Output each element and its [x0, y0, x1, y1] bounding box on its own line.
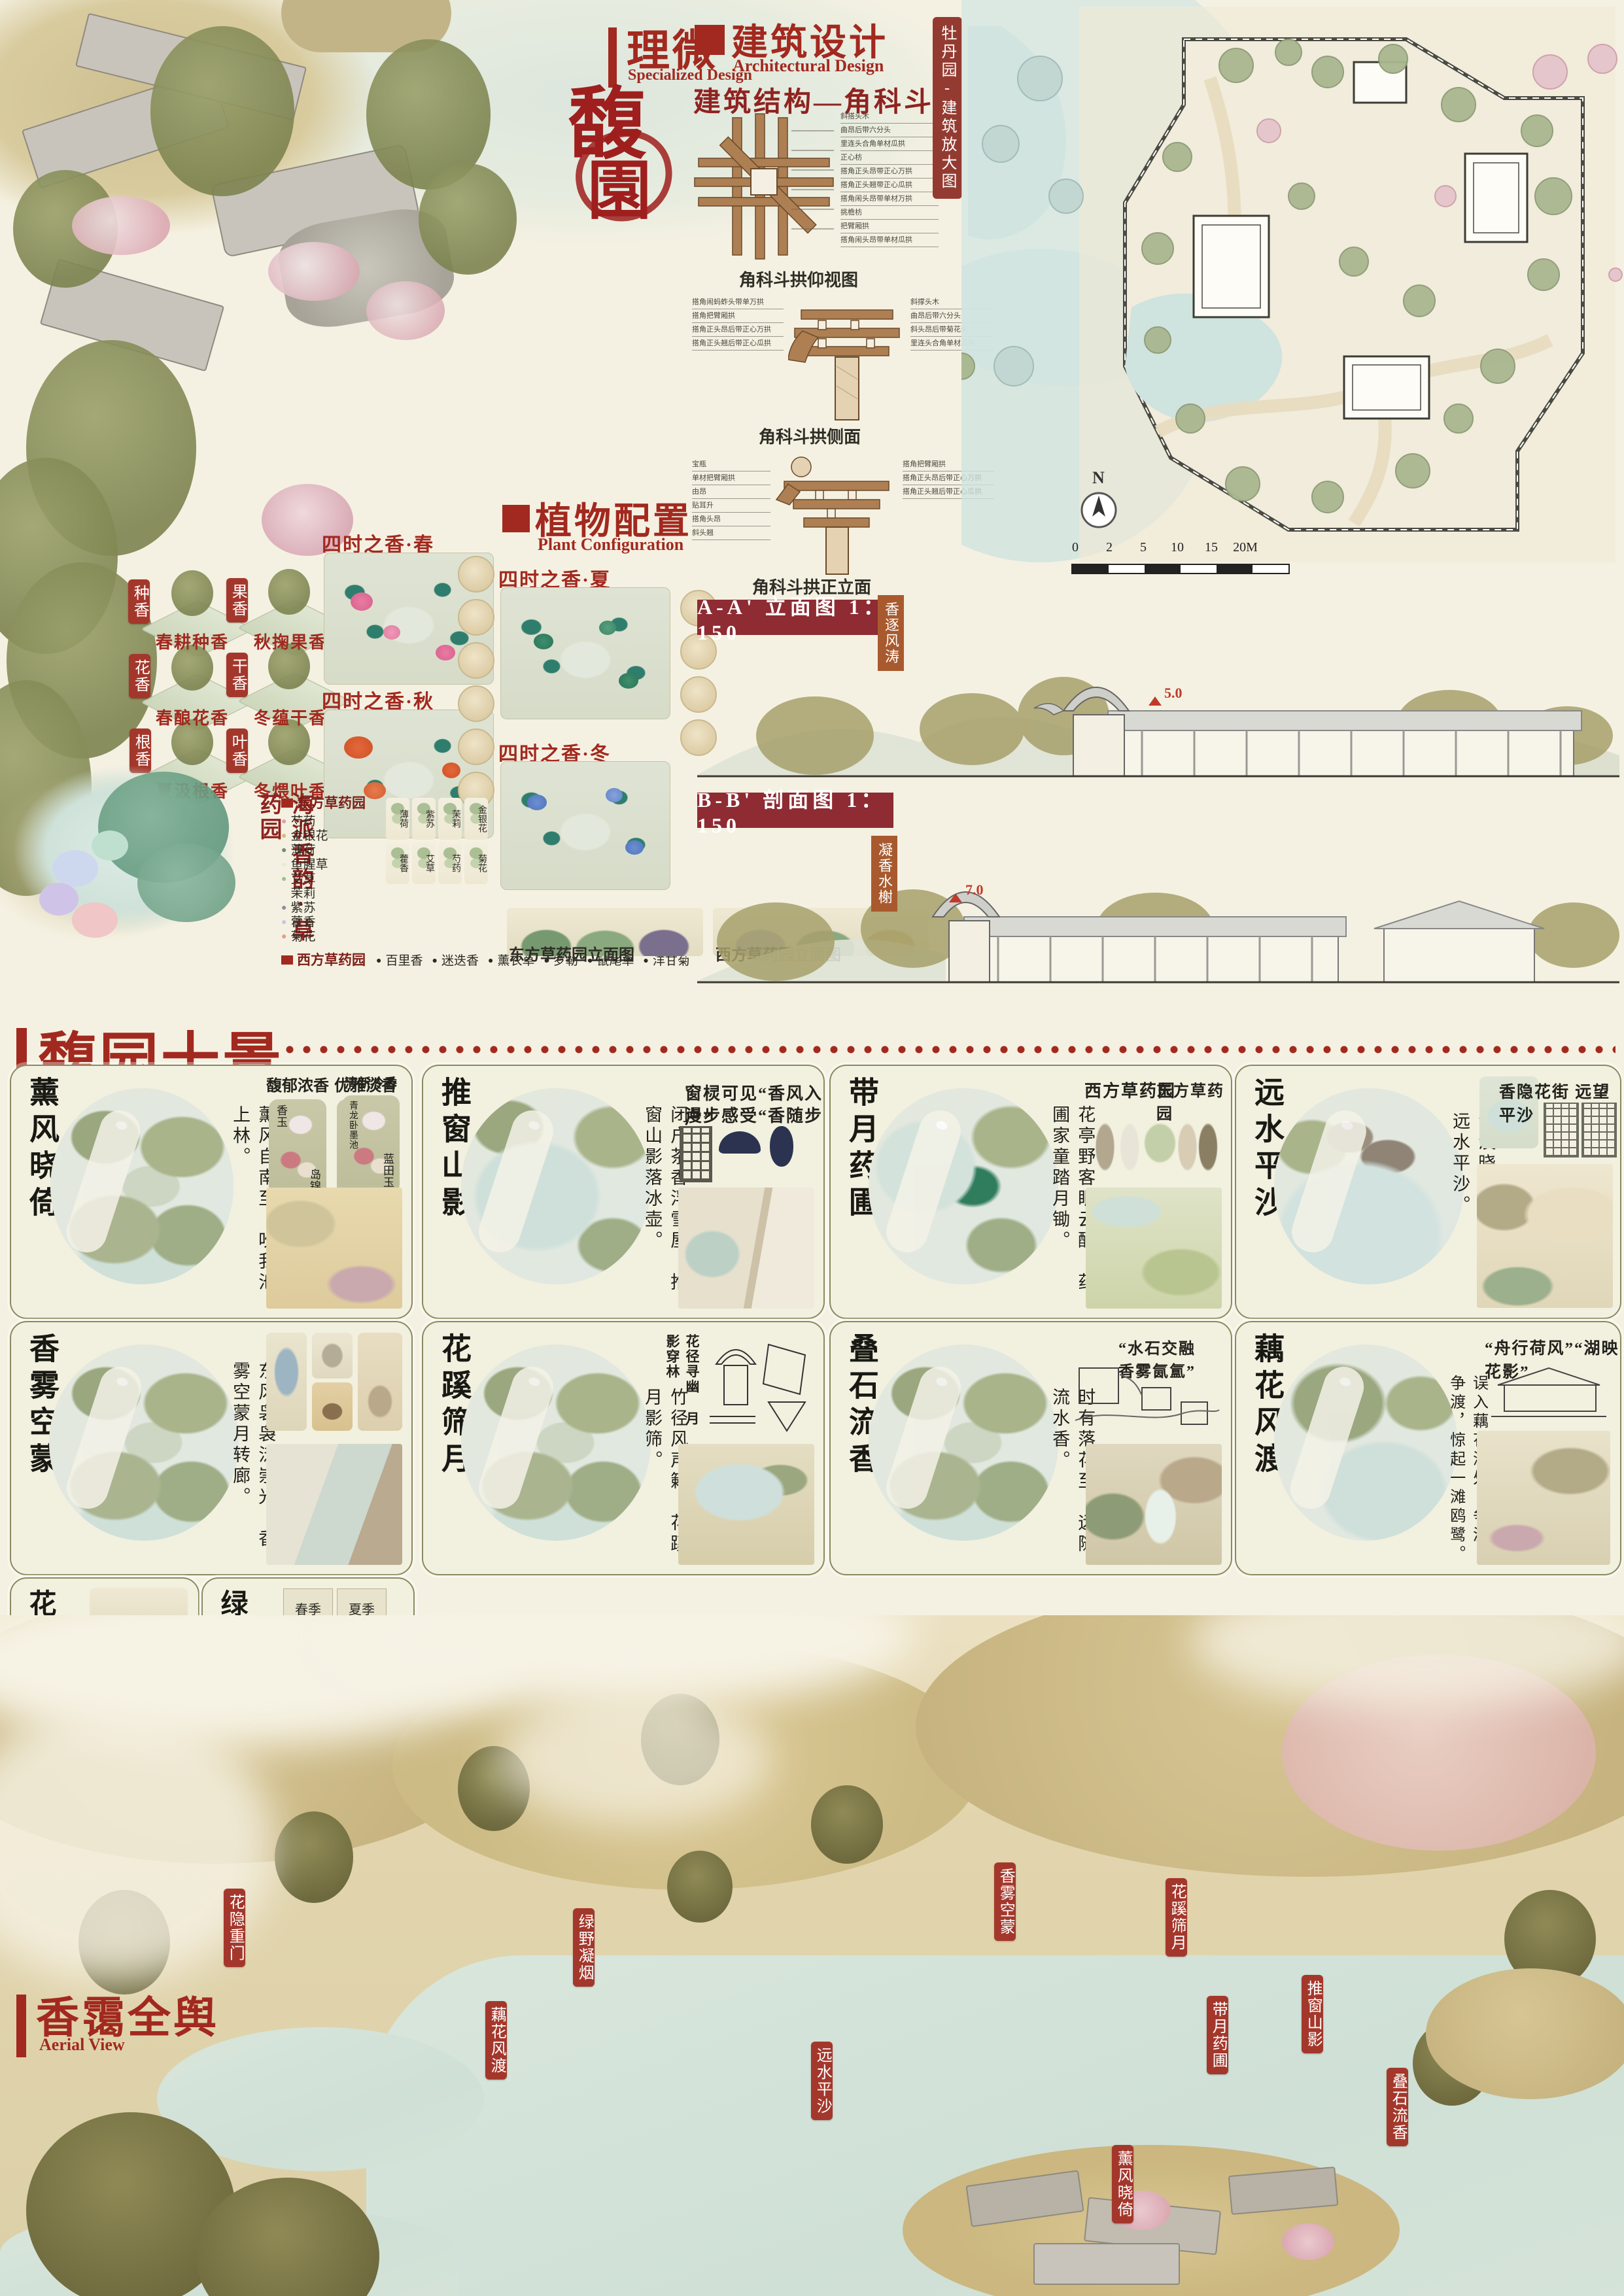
aerial-tag: 叠石流香 [1387, 2068, 1408, 2146]
scene-photo [678, 1444, 814, 1565]
scene-photo [266, 1444, 402, 1565]
bb-section-drawing: 7.0 [697, 831, 1619, 1020]
west-legend-title: 西方草药园 [281, 952, 366, 968]
dougong-bottom-labels: 斜搭头木曲昂后带六分头里连头合角单材瓜拱正心枋搭角正头昂带正心万拱搭角正头翘带正… [840, 110, 939, 247]
east-elev-caption: 东方草药园立面图 [509, 942, 634, 965]
dougong-callout-label: 搭角把臂厢拱 [692, 309, 784, 323]
aa-scene-tag: 香逐风涛 [878, 595, 904, 671]
aa-section-label: A-A' 立面图 1：150 [697, 600, 893, 635]
herb-legend-item: 紫苏 [281, 901, 379, 916]
fragrance-caption: 春耕种香 [156, 629, 229, 653]
master-plan-tag: 牡丹园-建筑放大图 [933, 17, 962, 199]
scene-card-daiyue: 带月药圃 花亭野客眠云醉，药圃家童踏月锄。 西方草药园 东方草药园 [829, 1065, 1232, 1319]
aerial-tag: 绿野凝烟 [573, 1908, 595, 1987]
dougong-callout-label: 斜搭头木 [840, 110, 939, 124]
scene-card-tuichuang: 推窗山影 闭户茶香浮雪屋，推窗山影落冰壶。 窗棂可见“香风入户” 漫步感受“香随… [422, 1065, 825, 1319]
flower-name: 蓝田玉 [379, 1153, 396, 1188]
dougong-callout-label: 挑檐枋 [840, 206, 939, 220]
dougong-caption-1: 角科斗拱仰视图 [739, 267, 858, 291]
scene-plan-circle [49, 1345, 239, 1541]
flower-name: 香玉 [273, 1105, 289, 1128]
rock-water-plan-sketch [1070, 1362, 1220, 1433]
dougong-callout-label: 搭角闹头昂带单材瓜拱 [840, 233, 939, 247]
herb-legend-item: 金银花 [281, 829, 379, 844]
aerial-tag: 远水平沙 [811, 2042, 833, 2120]
dougong-side-labels-left: 搭角闹蚂蚱头带单万拱搭角把臂厢拱搭角正头昂后带正心万拱搭角正头翘后带正心瓜拱 [692, 296, 784, 351]
dougong-caption-2: 角科斗拱侧面 [759, 424, 861, 448]
dougong-callout-label: 由昂 [692, 485, 770, 499]
scene-card-dieshi: 叠石流香 时有落花至，远随流水香。 “水石交融 香雾氤氲” [829, 1321, 1232, 1575]
censer-illustration [312, 1382, 353, 1431]
flower-grade-3: 清新冷香 青龙卧墨池 蓝田玉 [337, 1072, 405, 1193]
fragrance-caption: 秋掬果香 [254, 629, 327, 653]
bb-section-label: B-B' 剖面图 1：150 [697, 793, 893, 828]
scene-card-huaxi: 花蹊筛月 竹径风声籁，花蹊月影筛。 花径寻幽 月影穿林 [422, 1321, 825, 1575]
grade-label: 馥郁浓香 [265, 1072, 330, 1095]
scale-tick: 5 [1126, 540, 1160, 555]
dougong-callout-label: 宝瓶 [692, 458, 770, 471]
scene-photo [1477, 1431, 1610, 1565]
dougong-callout-label: 搭角正头昂后带正心万拱 [692, 323, 784, 337]
arch-red-square [695, 25, 725, 55]
dougong-front-labels-left: 宝瓶单材把臂厢拱由昂贴耳升搭角头昂斜头翘 [692, 458, 770, 540]
scale-tick: 0 [1058, 540, 1092, 555]
dougong-callout-label: 单材把臂厢拱 [692, 471, 770, 485]
dotted-divider [281, 1045, 1615, 1054]
herb-legend-item: 百里香 [376, 954, 423, 968]
dougong-front-view [775, 453, 899, 577]
herb-legend-item: 芍药 [281, 815, 379, 829]
east-legend-title: 东方草药园 [281, 793, 379, 812]
scale-tick: 20M [1228, 540, 1262, 555]
aerial-red-bar [16, 1995, 26, 2057]
season-plan-summer [500, 587, 670, 719]
dougong-callout-label: 搭角正头翘带正心瓜拱 [840, 179, 939, 192]
herb-thumb: 茉莉 [438, 798, 462, 840]
herb-thumb: 藿香 [386, 842, 409, 884]
fragrance-caption: 春酿花香 [156, 705, 229, 729]
dougong-bottom-view [693, 111, 837, 262]
scene-plan-circle [461, 1345, 651, 1541]
scene-photo [1086, 1188, 1222, 1309]
scene-plan-circle [869, 1088, 1058, 1284]
herb-thumb: 芍药 [438, 842, 462, 884]
pavilion-drawing [690, 1331, 814, 1436]
scene-card-xiangwu: 香雾空蒙 东风袅袅泛崇光，香雾空蒙月转廊。 [10, 1321, 413, 1575]
aerial-tag: 藕花风渡 [485, 2001, 507, 2080]
lattice-detail-icon [1544, 1103, 1579, 1157]
herb-legend-item: 艾草 [281, 872, 379, 887]
fragrance-tag: 花香 [129, 654, 150, 698]
flower-chip: 香玉 岛锦 [269, 1099, 326, 1197]
bb-scene-tag: 凝香水榭 [871, 836, 897, 912]
dougong-callout-label: 搭角闹蚂蚱头带单万拱 [692, 296, 784, 309]
dougong-callout-label: 搭角闹头昂带单材万拱 [840, 192, 939, 206]
herb-thumb: 薄荷 [386, 798, 409, 840]
herb-legend-item: 茉莉 [281, 887, 379, 901]
herb-thumb: 紫苏 [412, 798, 436, 840]
dougong-callout-label: 曲昂后带六分头 [840, 124, 939, 137]
master-plan: N 025101520M [961, 0, 1624, 589]
waterside-pavilion-sketch [1485, 1359, 1613, 1424]
aerial-tag: 花隐重门 [224, 1889, 245, 1967]
herb-thumb: 金银花 [464, 798, 488, 840]
dougong-callout-label: 斜头翘 [692, 526, 770, 540]
herb-legend-item: 鱼腥草 [281, 858, 379, 872]
bb-section-marker: 7.0 [965, 882, 984, 899]
plant-subtitle: Plant Configuration [538, 535, 683, 555]
scene-photo [266, 1188, 402, 1309]
aa-elevation-drawing: 5.0 [697, 638, 1619, 808]
scene-photo [1086, 1444, 1222, 1565]
dougong-side-view [788, 294, 906, 425]
scale-tick: 2 [1092, 540, 1126, 555]
aerial-subtitle: Aerial View [39, 2035, 125, 2055]
dougong-callout-label: 正心枋 [840, 151, 939, 165]
herb-legend-item: 迷迭香 [432, 954, 478, 968]
herb-garden-plan [13, 752, 262, 948]
scale-tick: 10 [1160, 540, 1194, 555]
east-herb-legend: 东方草药园 芍药金银花薄荷鱼腥草艾草茉莉紫苏藿香菊花 [281, 793, 379, 944]
aerial-tag: 带月药圃 [1207, 1996, 1228, 2074]
dougong-callout-label: 把臂厢拱 [840, 220, 939, 233]
scene-plan-circle [1274, 1088, 1464, 1284]
herb-thumbs: 薄荷紫苏茉莉金银花藿香艾草芍药菊花 [385, 797, 502, 885]
grade-label: 清新冷香 [337, 1072, 405, 1091]
herb-legend-item: 洋甘菊 [643, 954, 689, 968]
scene-photo [1477, 1164, 1613, 1308]
courtyard-painting [0, 0, 654, 562]
plant-red-square [502, 505, 530, 532]
dougong-callout-label: 里连头合角单材瓜拱 [840, 137, 939, 151]
north-arrow-icon: N [1092, 468, 1105, 488]
scene-plan-circle [1274, 1345, 1457, 1541]
herb-legend-item: 菊花 [281, 930, 379, 944]
flower-chip: 青龙卧墨池 蓝田玉 [342, 1095, 400, 1193]
rock-illustration [266, 1333, 307, 1431]
scale-bar [1071, 564, 1290, 574]
aerial-tag: 薰风晓倚 [1112, 2145, 1133, 2223]
main-title-char2: 園 [587, 139, 651, 231]
dougong-callout-label: 搭角头昂 [692, 513, 770, 526]
scale-ticks: 025101520M [1058, 540, 1320, 555]
courtyard-photo-small [358, 1333, 402, 1431]
herb-legend-item: 薄荷 [281, 844, 379, 858]
aerial-tag: 推窗山影 [1302, 1975, 1323, 2053]
dougong-callout-label: 搭角正头昂带正心万拱 [840, 165, 939, 179]
dougong-callout-label: 搭角正头翘后带正心瓜拱 [692, 337, 784, 351]
scene-card-ouhua: 藕花风渡 误入藕花深处。争渡，争渡，惊起一滩鸥鹭。 “舟行荷风”“湖映花影” [1235, 1321, 1621, 1575]
scene-card-yuanshui: 远水平沙 淡淡晓山横雾，茫茫远水平沙。 香隐花街 远望平沙 [1235, 1065, 1621, 1319]
lattice-window-icon [680, 1126, 712, 1182]
dougong-callout-label: 贴耳升 [692, 499, 770, 513]
aerial-tag: 花蹊筛月 [1166, 1878, 1187, 1957]
fragrance-tag: 种香 [128, 579, 150, 624]
season-plan-winter [500, 761, 670, 890]
scene-plan-circle [461, 1088, 651, 1284]
arch-subtitle: Architectural Design [733, 56, 884, 76]
lattice-detail-icon [1581, 1103, 1617, 1157]
oval-window-icon [770, 1126, 793, 1167]
scene-plan-circle [869, 1345, 1058, 1541]
poster-page: { "header": { "liwei": {"title": "理微", "… [0, 0, 1624, 2296]
herb-thumb: 菊花 [464, 842, 488, 884]
fragrance-caption: 冬蕴干香 [254, 705, 327, 729]
flower-name: 青龙卧墨池 [346, 1101, 359, 1150]
scene-photo [678, 1188, 814, 1309]
scene-card-xunfeng: 薰风晓倚 薰风自南至，吹我池上林。 馥郁浓香 香玉 岛锦 优雅淡香 姚黄 白玉 … [10, 1065, 413, 1319]
rock-illustration-2 [312, 1333, 353, 1379]
scale-tick: 15 [1194, 540, 1228, 555]
fragrance-tag: 果香 [226, 578, 248, 623]
figures-illustration [1084, 1100, 1222, 1178]
aerial-tag: 香雾空蒙 [994, 1862, 1016, 1941]
scene-plan-circle [50, 1088, 233, 1284]
herb-legend-item: 藿香 [281, 916, 379, 930]
fragrance-tag: 干香 [226, 653, 248, 697]
herb-thumb: 艾草 [412, 842, 436, 884]
aa-elevation-marker: 5.0 [1164, 685, 1183, 702]
